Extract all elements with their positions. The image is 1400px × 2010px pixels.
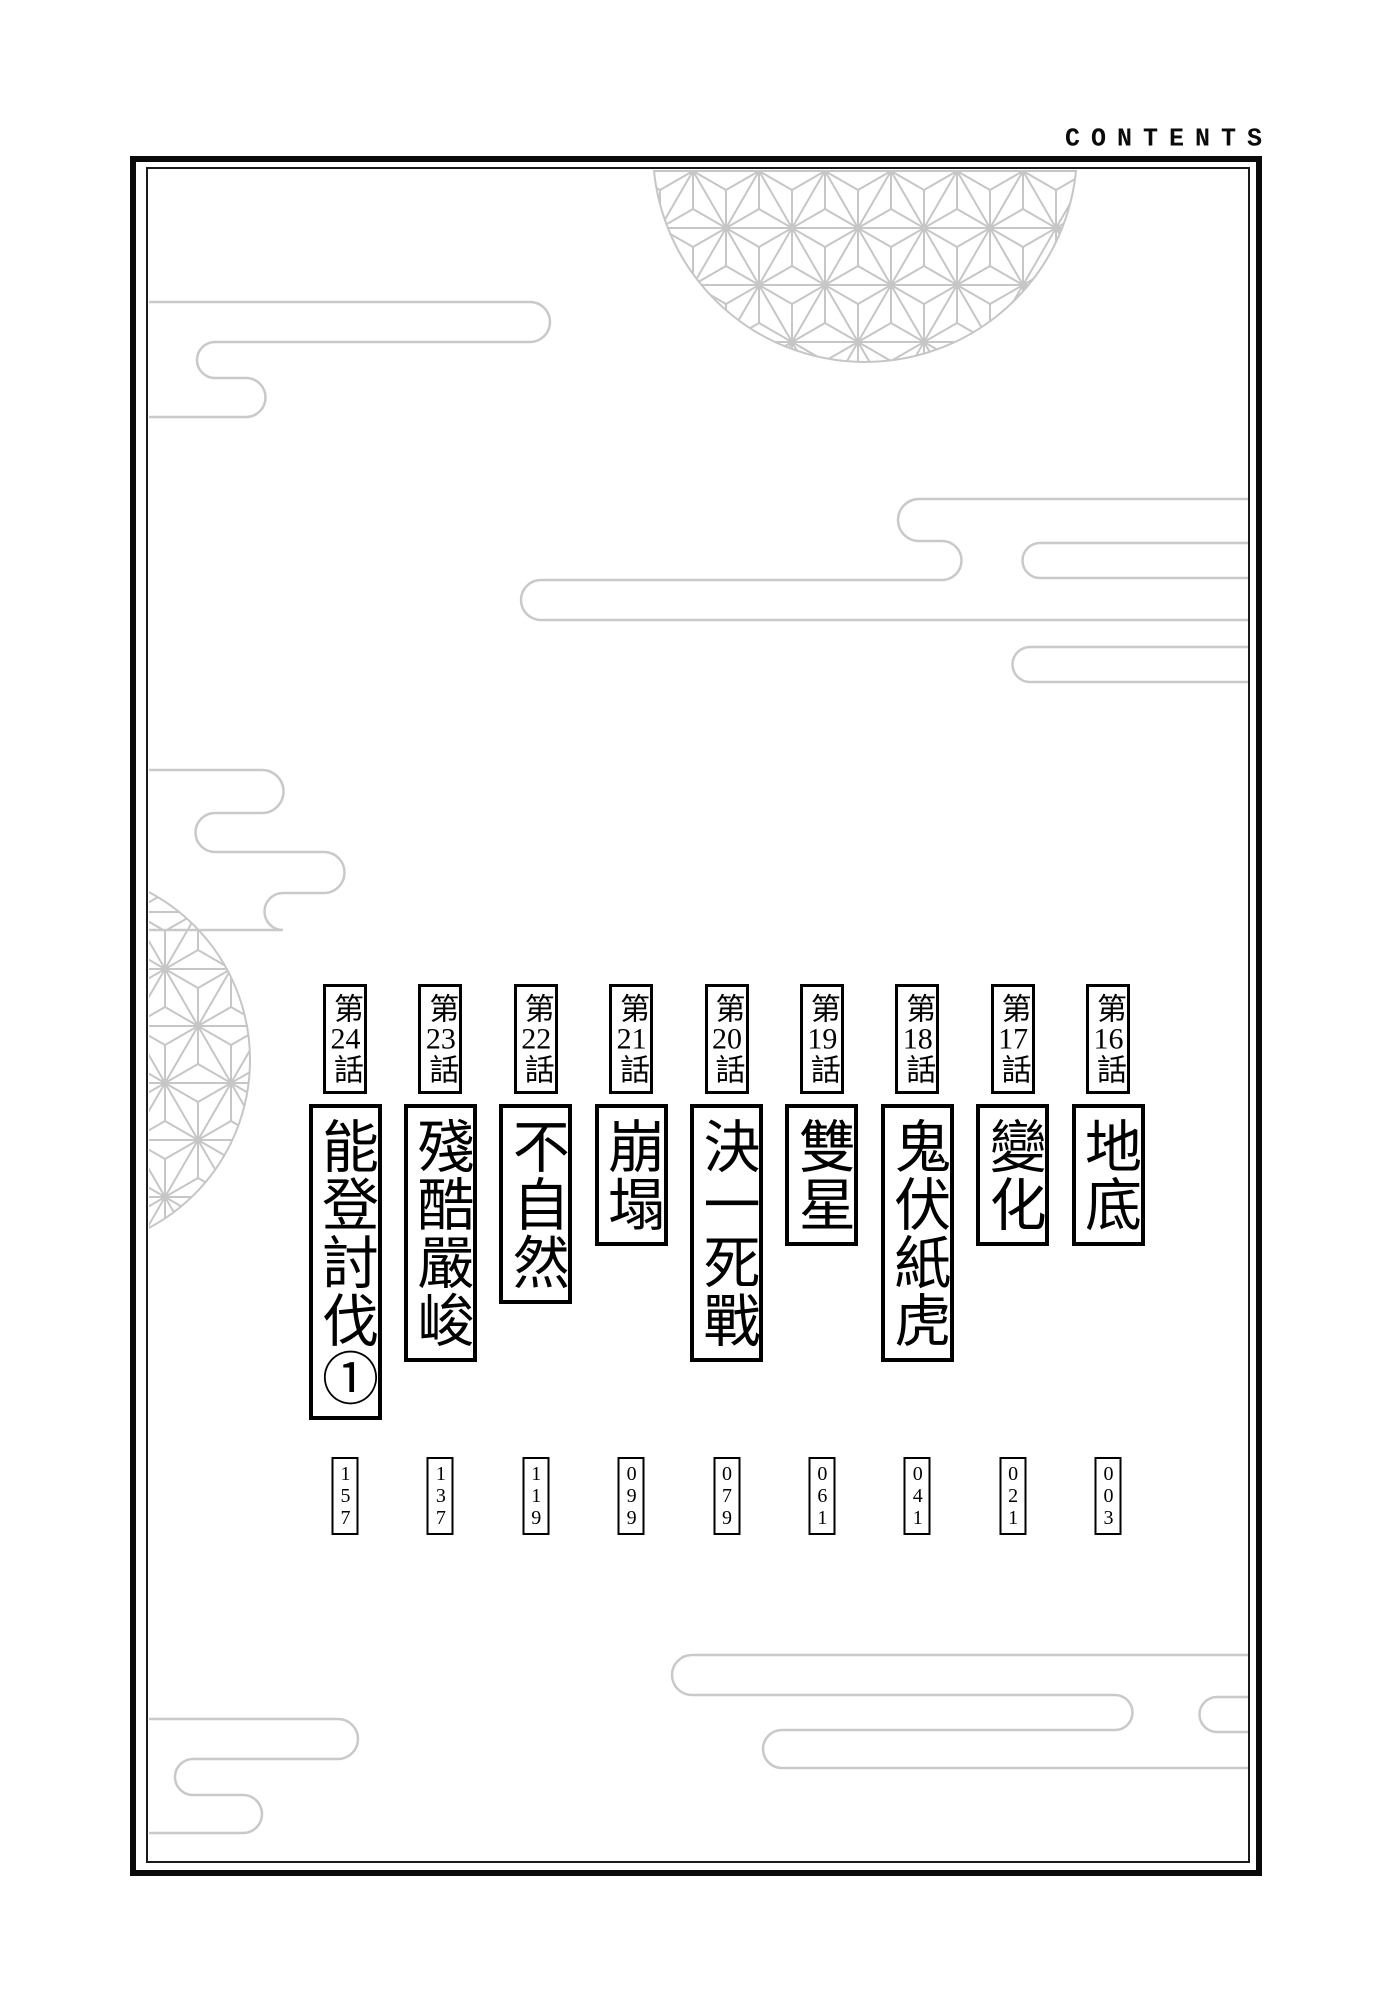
chapter-page-number-box: 021 (999, 1457, 1026, 1535)
chapter-page-number: 003 (1098, 1463, 1119, 1529)
chapter-number-text: 第16話 (1089, 993, 1127, 1085)
chapter-number-box: 第19話 (800, 984, 844, 1094)
chapter-number-box: 第22話 (514, 984, 558, 1094)
chapter-title-box: 雙星 (785, 1104, 858, 1246)
chapter-number-text: 第23話 (421, 993, 459, 1085)
chapter-entry: 第22話 不自然 119 (499, 984, 573, 1544)
chapter-entry: 第19話 雙星 061 (785, 984, 859, 1544)
chapter-entry: 第23話 殘酷嚴峻 137 (403, 984, 477, 1544)
chapter-page-number: 041 (907, 1463, 928, 1529)
chapter-entry: 第21話 崩塌 099 (594, 984, 668, 1544)
chapter-title: 變化 (980, 1117, 1045, 1233)
chapter-list: 第16話 地底 003 第17話 變化 021 第18話 鬼伏紙虎 041 (308, 984, 1145, 1544)
chapter-entry: 第24話 能登討伐① 157 (308, 984, 382, 1544)
chapter-entry: 第18話 鬼伏紙虎 041 (880, 984, 954, 1544)
chapter-title-box: 鬼伏紙虎 (881, 1104, 954, 1362)
chapter-title-box: 能登討伐① (309, 1104, 382, 1420)
chapter-page-number: 099 (621, 1463, 642, 1529)
chapter-page-number-box: 079 (713, 1457, 740, 1535)
chapter-number-text: 第18話 (898, 993, 936, 1085)
chapter-title: 雙星 (789, 1117, 854, 1233)
chapter-number-box: 第24話 (323, 984, 367, 1094)
chapter-title: 地底 (1076, 1117, 1141, 1233)
chapter-page-number-box: 061 (808, 1457, 835, 1535)
chapter-number-text: 第20話 (708, 993, 746, 1085)
chapter-number-text: 第22話 (517, 993, 555, 1085)
chapter-page-number: 137 (430, 1463, 451, 1529)
chapter-page-number-box: 041 (904, 1457, 931, 1535)
chapter-number-box: 第18話 (895, 984, 939, 1094)
chapter-page-number-box: 137 (427, 1457, 454, 1535)
chapter-title: 崩塌 (599, 1117, 664, 1233)
chapter-title-box: 變化 (976, 1104, 1049, 1246)
chapter-page-number: 119 (525, 1463, 546, 1529)
chapter-title: 鬼伏紙虎 (885, 1117, 950, 1349)
chapter-title: 不自然 (503, 1117, 568, 1291)
chapter-title-box: 崩塌 (595, 1104, 668, 1246)
chapter-number-box: 第17話 (991, 984, 1035, 1094)
chapter-number-box: 第16話 (1086, 984, 1130, 1094)
chapter-title: 能登討伐① (313, 1117, 378, 1407)
chapter-page-number-box: 119 (522, 1457, 549, 1535)
chapter-number-text: 第19話 (803, 993, 841, 1085)
chapter-page-number: 061 (811, 1463, 832, 1529)
chapter-entry: 第16話 地底 003 (1071, 984, 1145, 1544)
chapter-number-box: 第20話 (705, 984, 749, 1094)
chapter-page-number-box: 157 (332, 1457, 359, 1535)
chapter-page-number-box: 003 (1095, 1457, 1122, 1535)
chapter-page-number-box: 099 (618, 1457, 645, 1535)
chapter-number-text: 第24話 (326, 993, 364, 1085)
chapter-title-box: 殘酷嚴峻 (404, 1104, 477, 1362)
chapter-page-number: 021 (1002, 1463, 1023, 1529)
chapter-number-text: 第21話 (612, 993, 650, 1085)
chapter-title-box: 決一死戰 (690, 1104, 763, 1362)
chapter-page-number: 157 (335, 1463, 356, 1529)
chapter-number-box: 第21話 (609, 984, 653, 1094)
chapter-entry: 第20話 決一死戰 079 (690, 984, 764, 1544)
chapter-number-text: 第17話 (994, 993, 1032, 1085)
chapter-title: 殘酷嚴峻 (408, 1117, 473, 1349)
chapter-number-box: 第23話 (418, 984, 462, 1094)
chapter-title-box: 地底 (1072, 1104, 1145, 1246)
toc-page: CONTENTS 第16話 (0, 0, 1400, 2010)
chapter-entry: 第17話 變化 021 (976, 984, 1050, 1544)
chapter-title: 決一死戰 (694, 1117, 759, 1349)
chapter-title-box: 不自然 (499, 1104, 572, 1304)
chapter-page-number: 079 (716, 1463, 737, 1529)
